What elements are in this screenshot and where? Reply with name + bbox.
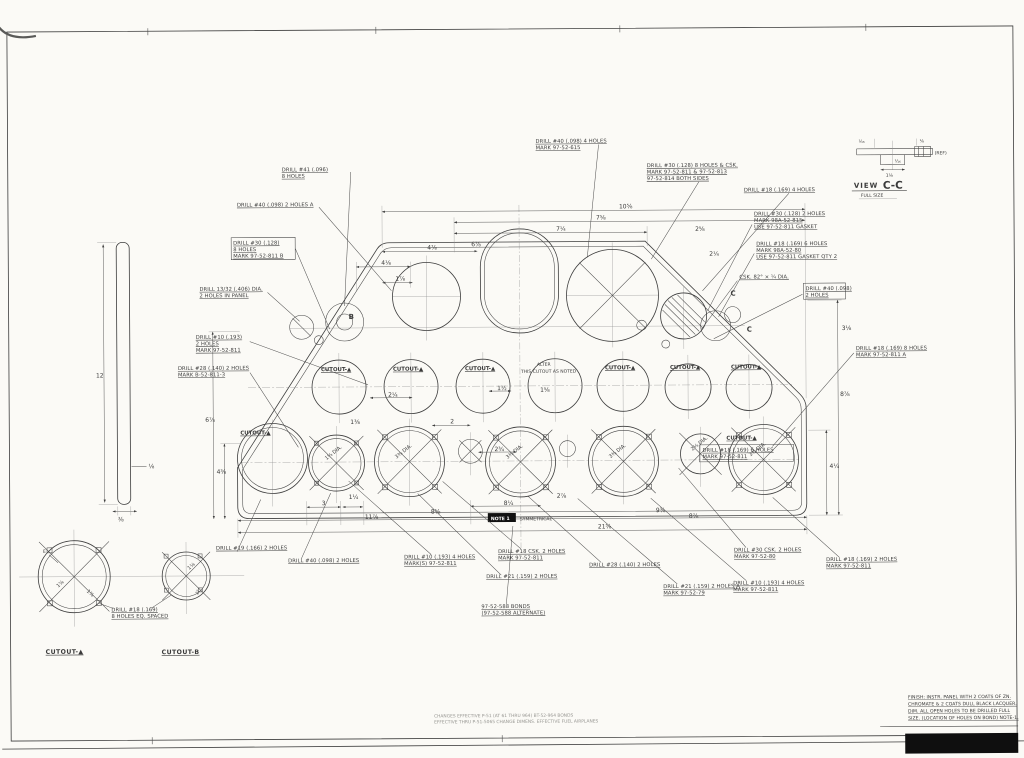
centerline-note: NOTE 1 SYMMETRICAL bbox=[488, 513, 553, 523]
dim-label: 3 bbox=[322, 500, 326, 507]
dim-label: 11⅞ bbox=[365, 514, 379, 521]
dim-label: 1⅜ bbox=[350, 419, 360, 426]
dim-label: 3⅛ bbox=[842, 325, 852, 332]
callout-text: MARK(S) 97-52-811 bbox=[404, 561, 457, 567]
callout-text: MARK 97-52-79 bbox=[663, 590, 705, 596]
dim-label: ¹⁄₁₆ bbox=[895, 159, 901, 165]
callout-text: 8 HOLES bbox=[282, 174, 305, 180]
callout-text: DRILL #18 (.169) 6 HOLES bbox=[702, 447, 773, 453]
callout-text: 2 HOLES bbox=[196, 341, 219, 347]
dim-label: 2 bbox=[450, 418, 454, 425]
callout-text: 8 HOLES bbox=[233, 247, 256, 253]
dim-label: 1⅛ bbox=[886, 173, 894, 179]
callout-text: DRILL #28 (.140) 2 HOLES bbox=[178, 366, 249, 372]
callout: DRILL #18 (.169)8 HOLES EQ. SPACED bbox=[99, 595, 171, 620]
view-scale: FULL SIZE bbox=[861, 193, 884, 199]
dim-label: ¹⁄₁₆ bbox=[859, 139, 865, 145]
centerline-text: SYMMETRICAL bbox=[520, 516, 553, 522]
dim-label: 1½ bbox=[497, 385, 507, 392]
note-box-label: NOTE 1 bbox=[491, 516, 510, 522]
dim-label: 4⅛ bbox=[381, 260, 391, 267]
dim-label: ⅜ bbox=[118, 516, 124, 523]
dia-label: 3⅜ DIA. bbox=[608, 443, 628, 460]
dim-label: 2⅞ bbox=[557, 493, 567, 500]
callout-text: DRILL #19 (.166) 2 HOLES bbox=[216, 545, 287, 551]
cutout-a-label: CUTOUT-▲ bbox=[321, 367, 352, 373]
callout: DRILL 13/32 (.406) DIA.2 HOLES IN PANEL bbox=[199, 286, 299, 322]
callout-text: DRILL #18 (.169) 2 HOLES bbox=[826, 557, 897, 563]
cutout-a-label: CUTOUT-▲ bbox=[240, 430, 271, 436]
note-line: CHROMATE & 2 COATS DULL BLACK LACQUER. bbox=[908, 701, 1017, 708]
view-section: C-C bbox=[883, 180, 903, 192]
callout-text: CSK. 82° × ¼ DIA. bbox=[739, 274, 789, 280]
cutout-a-label: CUTOUT-▲ bbox=[465, 366, 496, 372]
callout-text: DRILL 13/32 (.406) DIA. bbox=[199, 287, 263, 293]
dim-label: 6⅞ bbox=[205, 417, 215, 424]
callout-text: DRILL #41 (.096) bbox=[282, 167, 328, 173]
callout: DRILL #28 (.140) 2 HOLES bbox=[528, 495, 661, 569]
instrument-panel-outline bbox=[236, 240, 807, 518]
drawing-sheet: 12 ⅜ ⅛ bbox=[0, 0, 1024, 758]
callout-text: DRILL #10 (.193) bbox=[196, 335, 242, 341]
effectivity-line: EFFECTIVE THRU P-51-5065 CHANGE DIMENS. … bbox=[434, 718, 598, 725]
effectivity-line: CHANGES EFFECTIVE P-51 (AT 61 THRU 964) … bbox=[434, 713, 573, 720]
callout: DRILL #40 (.098) 4 HOLESMARK 97-52-615 bbox=[536, 138, 608, 257]
dia-label: 1⅞ bbox=[85, 589, 95, 599]
callout-text: MARK 97-52-811 bbox=[196, 348, 241, 354]
cutout-a-label: CUTOUT-▲ bbox=[726, 436, 757, 442]
callout-text: MARK 98A-52-815 bbox=[754, 218, 803, 224]
callout: DRILL #41 (.096)8 HOLES bbox=[282, 167, 352, 306]
dim-label: 8⅞ bbox=[689, 513, 699, 520]
cutout-b-detail: 1⅛ ⅞ CUTOUT-B bbox=[161, 542, 211, 656]
point-label-e: E bbox=[43, 549, 46, 555]
callout-text: DRILL #18 CSK. 2 HOLES bbox=[498, 549, 565, 555]
cutout-a-label: CUTOUT-▲ bbox=[605, 365, 636, 371]
note-line: FINISH: INSTR. PANEL WITH 2 COATS OF ZN. bbox=[908, 694, 1011, 701]
top-row-cutouts bbox=[289, 228, 741, 364]
alter-note: THIS CUTOUT AS NOTED bbox=[520, 369, 577, 375]
blueprint-svg: 12 ⅜ ⅛ bbox=[0, 0, 1024, 758]
callout-text: MARK B-52-811-3 bbox=[178, 372, 225, 378]
dim-label: 2¼ bbox=[709, 251, 719, 258]
dim-label: 12 bbox=[96, 372, 104, 379]
callout-text: MARK 97-52-80 bbox=[734, 554, 776, 560]
callout-text: DRILL #40 (.098) 2 HOLES A bbox=[237, 202, 314, 208]
dia-label: 3⅜ DIA. bbox=[394, 443, 414, 460]
callout-text: MARK 97-52-811 bbox=[826, 563, 871, 569]
dim-label: 8¼ bbox=[504, 500, 514, 507]
view-title: VIEW bbox=[854, 182, 879, 190]
dim-label: 7¼ bbox=[556, 226, 566, 233]
note-line: DIM. ALL OPEN HOLES TO BE DRILLED FULL bbox=[908, 708, 1011, 715]
callout: DRILL #30 (.128) 8 HOLES & CSK.MARK 97-5… bbox=[647, 163, 739, 260]
cutout-a-title: CUTOUT-▲ bbox=[46, 649, 84, 656]
cutout-b-title: CUTOUT-B bbox=[162, 649, 200, 656]
callout-text: DRILL #21 (.159) 2 HOLES bbox=[486, 574, 557, 580]
callout-text: DRILL #30 (.128) 2 HOLES bbox=[754, 211, 825, 217]
dim-label: 21⅝ bbox=[598, 523, 612, 530]
callout-text: DRILL #21 (.159) 2 HOLES A bbox=[663, 584, 740, 590]
dim-label: 10⅝ bbox=[619, 203, 633, 210]
dim-label: 8⅞ bbox=[840, 391, 850, 398]
dim-label: 1⅞ bbox=[395, 276, 405, 283]
dim-label: 9⅜ bbox=[656, 507, 666, 514]
callout: 97-52-588 BONDS(97-52-588 ALTERNATE) bbox=[481, 526, 545, 617]
callout-text: DRILL #18 (.169) bbox=[111, 607, 157, 613]
callout-text: DRILL #40 (.098) bbox=[805, 286, 851, 292]
callout-text: USE 97-52-811 GASKET QTY 2 bbox=[756, 254, 837, 260]
callout-text: DRILL #18 (.169) 8 HOLES bbox=[856, 345, 927, 351]
dim-label: 6⅞ bbox=[471, 241, 481, 248]
note-line: SIZE. (LOCATION OF HOLES ON BOND) NOTE-1… bbox=[908, 715, 1019, 722]
callout-text: USE 97-52-811 GASKET bbox=[754, 224, 818, 230]
panel-edge-profile: 12 ⅜ ⅛ bbox=[95, 242, 155, 523]
callout-text: 97-52-814 BOTH SIDES bbox=[647, 176, 709, 182]
dia-label: 1⅝ bbox=[56, 579, 66, 589]
callout-text: 97-52-588 BONDS bbox=[481, 604, 530, 610]
callout-text: 2 HOLES bbox=[805, 293, 828, 299]
callout-text: 8 HOLES EQ. SPACED bbox=[111, 614, 168, 620]
section-flag-c: C bbox=[747, 326, 752, 334]
callout-text: MARK 97-52-615 bbox=[536, 145, 581, 151]
callout: DRILL #28 (.140) 2 HOLESMARK B-52-811-3 bbox=[178, 365, 298, 448]
callout-text: MARK 97-52-811 & 97-52-813 bbox=[647, 169, 727, 175]
redaction-bar bbox=[905, 733, 1018, 754]
cutout-labels: CUTOUT-▲ CUTOUT-▲ CUTOUT-▲ CUTOUT-▲ CUTO… bbox=[239, 289, 762, 444]
dim-label: ⅛ bbox=[149, 463, 155, 470]
diameter-labels: 3⅜ DIA. 3⅜ DIA. 3⅜ DIA. 3⅜ DIA. 2⅛ DIA. … bbox=[324, 435, 768, 462]
alter-note: ALTER bbox=[537, 362, 551, 368]
dim-label: 7⅝ bbox=[596, 214, 606, 221]
notes-block: FINISH: INSTR. PANEL WITH 2 COATS OF ZN.… bbox=[908, 694, 1019, 722]
ref-label: (REF) bbox=[935, 150, 947, 156]
callout-text: DRILL #10 (.193) 4 HOLES bbox=[733, 580, 804, 586]
cutout-a-label: CUTOUT-▲ bbox=[393, 367, 424, 373]
cutout-a-detail: 1⅝ 1⅞ E CUTOUT-▲ bbox=[19, 529, 245, 656]
dim-label: ⅛ bbox=[920, 138, 925, 144]
dia-label: 1⅛ bbox=[187, 562, 197, 572]
dim-label: 1⅝ bbox=[540, 387, 550, 394]
callout-text: DRILL #30 (.128) bbox=[233, 240, 279, 246]
section-flag-b: B bbox=[349, 313, 354, 321]
callout: CSK. 82° × ¼ DIA. bbox=[701, 274, 789, 329]
dim-label: 2¼ bbox=[388, 392, 398, 399]
dim-label: 1¼ bbox=[349, 494, 359, 501]
callout-text: DRILL #18 (.169) 6 HOLES bbox=[756, 241, 827, 247]
callout-text: DRILL #30 (.128) 8 HOLES & CSK. bbox=[647, 163, 738, 170]
callout-text: MARK 97-52-811 B bbox=[233, 253, 284, 259]
callout-text: DRILL #10 (.193) 4 HOLES bbox=[404, 554, 475, 560]
callout-text: 2 HOLES IN PANEL bbox=[199, 293, 248, 299]
callout-text: DRILL #40 (.098) 2 HOLES bbox=[288, 558, 359, 564]
callout: DRILL #30 (.128)8 HOLESMARK 97-52-811 B bbox=[231, 237, 330, 330]
callout: DRILL #19 (.166) 2 HOLES bbox=[216, 499, 288, 551]
cutout-a-label: CUTOUT-▲ bbox=[670, 365, 701, 371]
callout-text: DRILL #28 (.140) 2 HOLES bbox=[589, 562, 660, 568]
scan-artifacts bbox=[0, 21, 1018, 758]
dim-label: 4⅞ bbox=[427, 244, 437, 251]
dim-label: 4¼ bbox=[830, 463, 840, 470]
dim-label: 2¾ bbox=[494, 446, 504, 453]
callout-text: MARK 97-52-811 A bbox=[856, 352, 907, 358]
callout: DRILL #18 (.169) 2 HOLESMARK 97-52-811 bbox=[773, 497, 898, 570]
view-cc-detail: ¹⁄₁₆ ⅛ ¹⁄₁₆ 1⅛ (REF) VIEW C-C FULL SIZE bbox=[852, 138, 948, 199]
callout-text: (97-52-588 ALTERNATE) bbox=[481, 610, 545, 616]
callout: DRILL #40 (.098) 2 HOLES A bbox=[237, 202, 392, 292]
cutout-a-label: CUTOUT-▲ bbox=[731, 364, 762, 370]
callout-text: DRILL #18 (.169) 4 HOLES bbox=[744, 187, 815, 193]
callout: DRILL #10 (.193) 4 HOLESMARK 97-52-811 bbox=[651, 497, 805, 593]
callout-text: DRILL #30 CSK. 2 HOLES bbox=[734, 547, 801, 553]
dim-label: 2⅝ bbox=[695, 226, 705, 233]
callout-text: MARK 97-52-811 bbox=[498, 555, 543, 561]
callout-text: DRILL #40 (.098) 4 HOLES bbox=[536, 138, 607, 144]
callout-text: MARK 98A-52-80 bbox=[756, 248, 801, 254]
effectivity-block: CHANGES EFFECTIVE P-51 (AT 61 THRU 964) … bbox=[434, 712, 599, 725]
callout-text: MARK 97-52-811 bbox=[702, 454, 747, 460]
callout-text: MARK 97-52-811 bbox=[733, 587, 778, 593]
dim-label: 4⅜ bbox=[217, 469, 227, 476]
